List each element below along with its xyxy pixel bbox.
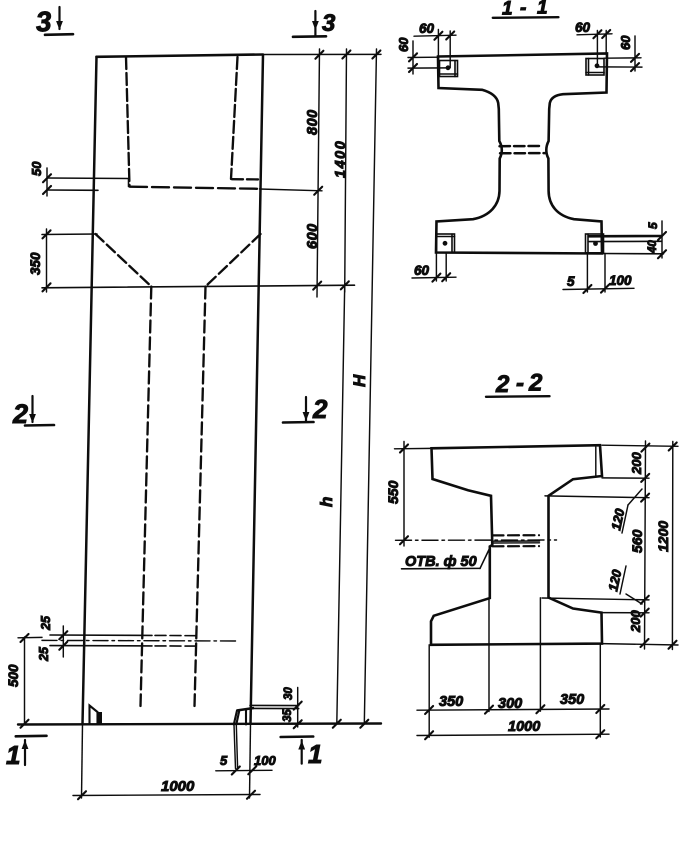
svg-text:5: 5 <box>646 222 660 229</box>
svg-text:800: 800 <box>305 109 321 135</box>
svg-text:2: 2 <box>528 370 543 397</box>
svg-text:100: 100 <box>609 273 632 288</box>
svg-text:5: 5 <box>567 274 575 289</box>
svg-text:60: 60 <box>414 263 430 278</box>
svg-text:25: 25 <box>37 646 51 662</box>
svg-text:2: 2 <box>495 371 510 398</box>
svg-text:60: 60 <box>575 20 591 35</box>
svg-text:-: - <box>520 0 526 19</box>
svg-text:h: h <box>317 497 336 507</box>
svg-text:1400: 1400 <box>333 140 349 178</box>
svg-text:550: 550 <box>385 480 401 504</box>
svg-text:50: 50 <box>29 161 44 176</box>
svg-text:1: 1 <box>308 739 322 769</box>
svg-text:1: 1 <box>537 0 548 19</box>
svg-text:500: 500 <box>6 664 21 687</box>
svg-text:1000: 1000 <box>161 778 195 795</box>
svg-text:3: 3 <box>35 6 53 38</box>
svg-text:200: 200 <box>629 452 644 475</box>
svg-text:350: 350 <box>28 252 43 275</box>
svg-text:560: 560 <box>629 529 645 553</box>
svg-text:60: 60 <box>419 21 435 36</box>
svg-text:30: 30 <box>283 687 295 700</box>
svg-text:350: 350 <box>560 692 584 708</box>
svg-text:3: 3 <box>322 10 336 37</box>
svg-text:2: 2 <box>312 394 328 424</box>
svg-text:1200: 1200 <box>655 521 671 552</box>
svg-text:5: 5 <box>220 753 228 768</box>
svg-text:35: 35 <box>282 709 294 722</box>
svg-text:200: 200 <box>628 610 643 633</box>
svg-text:25: 25 <box>39 615 53 631</box>
svg-text:1: 1 <box>6 740 20 770</box>
svg-text:ОТВ. ф 50: ОТВ. ф 50 <box>405 554 477 570</box>
svg-text:600: 600 <box>305 223 321 249</box>
svg-text:60: 60 <box>618 35 633 50</box>
svg-text:40: 40 <box>647 240 659 254</box>
svg-text:1000: 1000 <box>508 719 540 735</box>
svg-text:100: 100 <box>254 753 276 768</box>
svg-text:60: 60 <box>396 37 411 52</box>
svg-text:H: H <box>350 374 369 387</box>
svg-text:350: 350 <box>439 694 463 710</box>
svg-text:-: - <box>516 370 524 397</box>
svg-text:300: 300 <box>498 696 522 712</box>
